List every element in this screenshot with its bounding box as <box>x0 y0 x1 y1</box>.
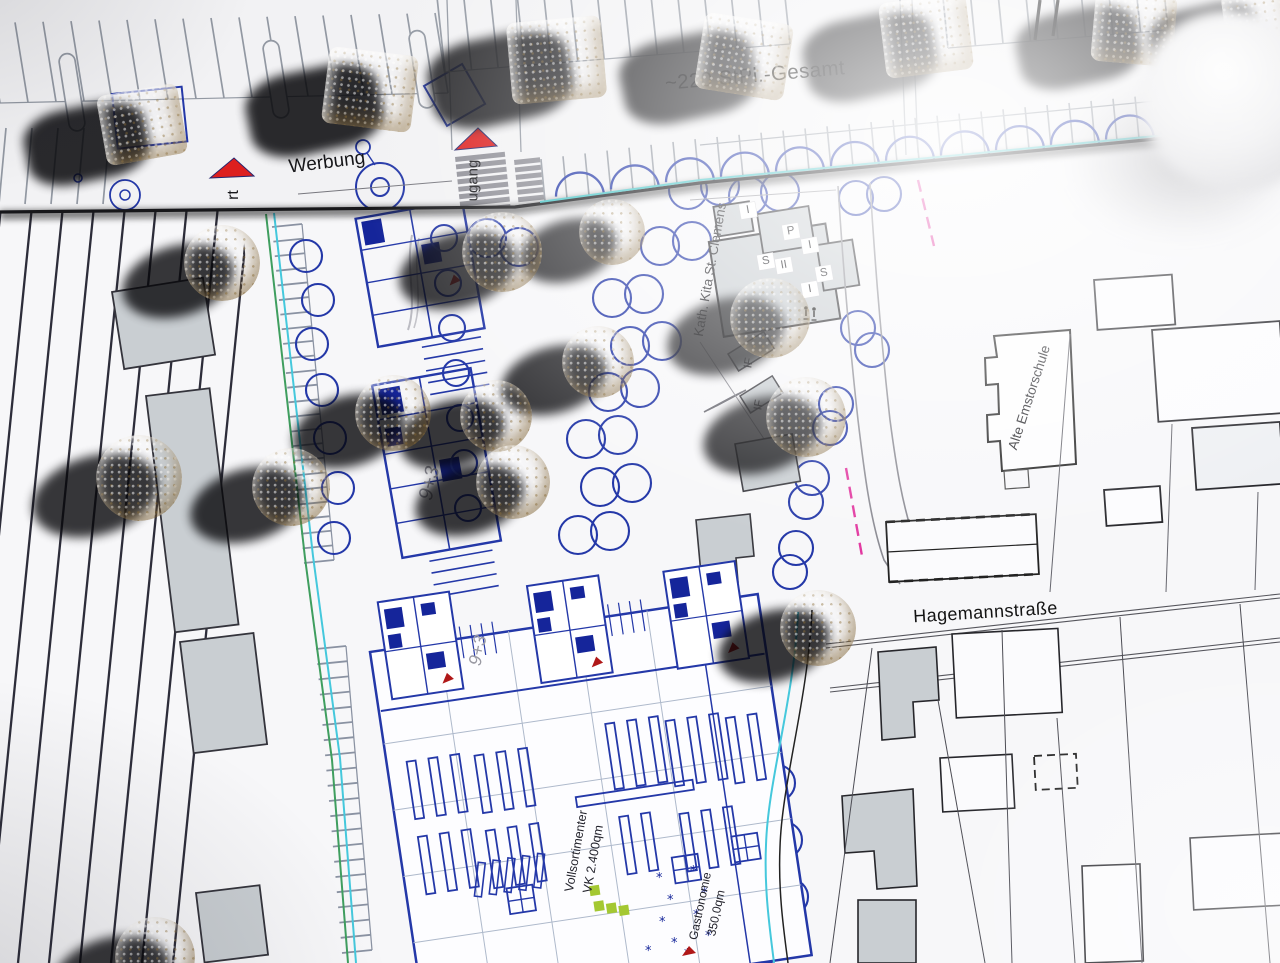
kita-chip-s2: S <box>815 265 833 283</box>
zufahrt-fragment-label: rt <box>225 175 243 215</box>
svg-text:*: * <box>667 893 674 908</box>
svg-text:*: * <box>645 944 652 959</box>
kita-chip-p: P <box>782 223 800 241</box>
kita-chip-i3: I <box>801 281 819 299</box>
kita-chip-s1: S <box>757 253 775 271</box>
svg-text:*: * <box>656 871 663 886</box>
kita-chip-i1: I <box>739 202 757 220</box>
zugang-fragment-label: ugang <box>465 146 482 216</box>
kita-chip-ii: II <box>775 257 793 275</box>
svg-text:*: * <box>659 915 666 930</box>
model-photo-scene: ********** ~220 StPl.-Gesamt Werbung rt … <box>0 0 1280 963</box>
svg-text:*: * <box>690 864 697 879</box>
svg-text:*: * <box>671 936 678 951</box>
kita-chip-i2: I <box>801 237 819 255</box>
